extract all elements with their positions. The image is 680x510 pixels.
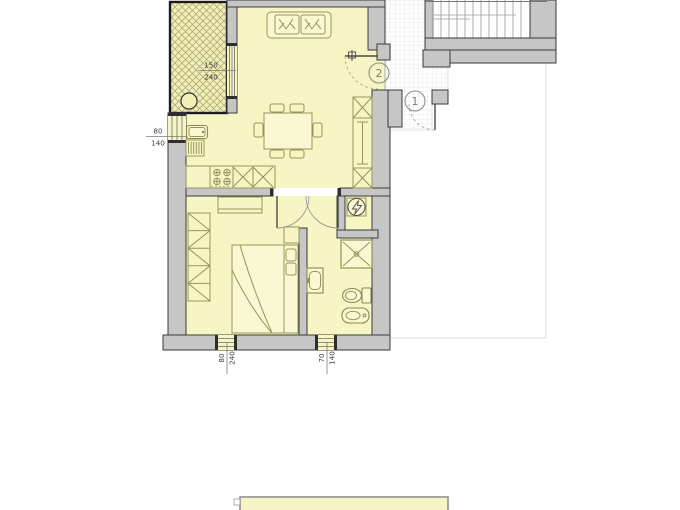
floor-plan-page: 150 240 80 140 80 240 70 140 2 1 xyxy=(0,0,680,510)
partition-living-bedroom-right xyxy=(340,188,390,196)
wall-left xyxy=(168,113,186,335)
wall-entry-jamb xyxy=(377,44,390,60)
balcony-french-window xyxy=(227,43,237,99)
stair-wall-bottom-a xyxy=(425,38,556,50)
dim-height: 140 xyxy=(328,351,337,365)
dim-width: 80 xyxy=(217,353,226,363)
kitchen-window xyxy=(168,113,186,143)
bedroom-window xyxy=(215,335,237,350)
dim-height: 140 xyxy=(151,139,165,148)
shower-icon xyxy=(341,240,372,268)
water-heater-icon xyxy=(348,199,365,216)
dim-height: 240 xyxy=(228,351,237,365)
partition-living-bedroom-left xyxy=(186,188,273,196)
boiler-closet-wall-bottom xyxy=(337,230,378,238)
partition-bedroom-bath xyxy=(299,228,307,335)
marker-landing-label: 1 xyxy=(412,96,419,108)
floor-plan: 150 240 80 140 80 240 70 140 2 1 xyxy=(0,0,680,510)
balcony-round-element-icon xyxy=(181,93,197,109)
dim-height: 240 xyxy=(204,73,218,82)
dim-width: 70 xyxy=(317,353,326,363)
stair-wall-left xyxy=(425,0,433,38)
balcony-hatched-area xyxy=(170,2,227,113)
toilet-icon xyxy=(343,288,372,303)
bathroom-window xyxy=(315,335,337,350)
landing-wall-piece xyxy=(432,90,448,104)
double-bed xyxy=(232,245,298,333)
bidet-icon xyxy=(342,308,369,323)
dim-width: 80 xyxy=(153,127,163,136)
dim-width: 150 xyxy=(204,61,218,70)
next-plan-partial xyxy=(234,497,448,510)
door-jamb xyxy=(338,188,342,196)
wall-top xyxy=(227,0,385,7)
sofa xyxy=(267,12,331,38)
marker-entry-label: 2 xyxy=(376,68,383,80)
landing-wall-block xyxy=(423,50,450,67)
washbasin-icon xyxy=(307,268,323,293)
balcony xyxy=(170,2,227,113)
wall-right-lower xyxy=(372,90,390,335)
kitchen-sink-icon xyxy=(187,126,208,139)
wall-bottom xyxy=(163,335,390,350)
stair-wall-right xyxy=(530,0,556,40)
stair-wall-bottom-b xyxy=(447,50,556,63)
door-jamb xyxy=(270,188,274,196)
wall-right-bulge xyxy=(388,90,402,127)
